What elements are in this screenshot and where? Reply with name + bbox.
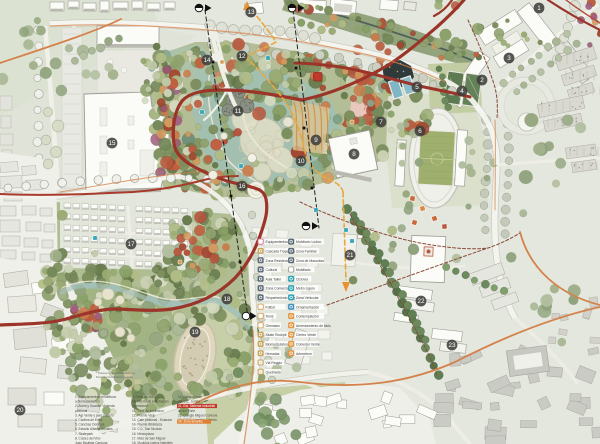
svg-text:8. Colsec del Vivo: 8. Colsec del Vivo — [75, 436, 101, 440]
svg-text:Pereira consolidacion verde: Pereira consolidacion verde — [96, 375, 133, 379]
svg-text:9: 9 — [314, 137, 318, 144]
svg-text:Gimnasio: Gimnasio — [266, 324, 280, 328]
svg-text:1. Equipamientos dendriticos: 1. Equipamientos dendriticos — [75, 395, 116, 399]
svg-text:24. Zona amarilla: 24. Zona amarilla — [178, 420, 203, 424]
svg-text:3. Agr Verde y parq custero: 3. Agr Verde y parq custero — [75, 413, 114, 417]
svg-text:Mobiliario: Mobiliario — [296, 268, 311, 272]
svg-text:Arboretum: Arboretum — [296, 352, 312, 356]
svg-text:7: 7 — [379, 119, 383, 126]
svg-text:Herradas: Herradas — [266, 352, 280, 356]
svg-text:19. Patinodromo: 19. Patinodromo — [178, 395, 202, 399]
svg-text:14. Puente Biblioteca: 14. Puente Biblioteca — [132, 423, 162, 427]
svg-text:Contemplación: Contemplación — [296, 315, 319, 319]
svg-text:Skate Rockpit: Skate Rockpit — [266, 333, 287, 337]
svg-text:Via Reggio: Via Reggio — [266, 361, 283, 365]
svg-text:Metro Ligero: Metro Ligero — [296, 287, 315, 291]
svg-text:Aula Taller: Aula Taller — [266, 277, 283, 281]
svg-text:peatonal: peatonal — [75, 409, 88, 413]
svg-text:Zona Vehicular: Zona Vehicular — [296, 296, 319, 300]
svg-text:16. Mercoplaza: 16. Mercoplaza — [132, 432, 154, 436]
svg-text:Zona de Mascotas: Zona de Mascotas — [296, 259, 324, 263]
svg-text:18: 18 — [223, 296, 231, 303]
svg-text:3: 3 — [507, 55, 511, 62]
svg-text:an del Porte: an del Porte — [178, 409, 195, 413]
svg-text:12: 12 — [238, 53, 246, 60]
svg-text:15. C.C. San Nicolas: 15. C.C. San Nicolas — [132, 427, 162, 431]
svg-text:4. Cantina de Entol: 4. Cantina de Entol — [75, 418, 102, 422]
svg-text:20: 20 — [16, 407, 24, 414]
svg-text:Quebrada: Quebrada — [266, 370, 281, 374]
svg-text:17: 17 — [127, 241, 135, 248]
svg-text:17. Miso de San Miguel: 17. Miso de San Miguel — [132, 436, 166, 440]
svg-text:16: 16 — [238, 183, 246, 190]
svg-text:a biomusculacion: a biomusculacion — [75, 400, 100, 404]
svg-text:Zona Comercial: Zona Comercial — [266, 287, 290, 291]
svg-text:Tenis: Tenis — [266, 315, 274, 319]
svg-text:Zona Familiar: Zona Familiar — [296, 250, 318, 254]
svg-text:8: 8 — [352, 151, 356, 158]
svg-text:Zona Residencial: Zona Residencial — [266, 259, 292, 263]
svg-text:5. Canchas Oorturas: 5. Canchas Oorturas — [75, 423, 105, 427]
svg-text:4: 4 — [460, 88, 464, 95]
svg-text:Ornamentación: Ornamentación — [296, 305, 319, 309]
svg-text:Comedor Verde: Comedor Verde — [296, 343, 320, 347]
svg-text:6. Estadio Alberto Grisales: 6. Estadio Alberto Grisales — [75, 427, 113, 431]
svg-text:11. Torre de exhibicion: 11. Torre de exhibicion — [132, 409, 164, 413]
svg-text:Biomusculatura: Biomusculatura — [266, 343, 289, 347]
svg-text:10: 10 — [297, 158, 305, 165]
svg-text:21. Est. Sistema Industrial: 21. Est. Sistema Industrial — [178, 404, 215, 408]
svg-text:Ciclovia: Ciclovia — [296, 277, 308, 281]
svg-text:23: 23 — [448, 342, 456, 349]
svg-text:Arrendamiento de bicis: Arrendamiento de bicis — [296, 324, 331, 328]
svg-text:15: 15 — [108, 140, 116, 147]
svg-text:14: 14 — [203, 57, 211, 64]
svg-text:13. Cafe peatonal - Estacion: 13. Cafe peatonal - Estacion — [132, 418, 172, 422]
svg-text:5: 5 — [415, 84, 419, 91]
svg-text:Mobiliario Lúdico: Mobiliario Lúdico — [296, 240, 322, 244]
svg-text:22. Colegio Miguel Cordova: 22. Colegio Miguel Cordova — [178, 413, 218, 417]
svg-text:11: 11 — [235, 108, 242, 115]
svg-text:10. Puerto de entomacion: 10. Puerto de entomacion — [132, 400, 169, 404]
svg-text:9. Porte de BMX: 9. Porte de BMX — [132, 395, 156, 399]
svg-text:22: 22 — [417, 298, 425, 305]
svg-text:1: 1 — [537, 5, 541, 12]
svg-text:19: 19 — [191, 329, 199, 336]
svg-text:2: 2 — [480, 77, 484, 84]
svg-text:6: 6 — [418, 128, 422, 135]
svg-text:2. Avent y Guarder Vivienda: 2. Avent y Guarder Vivienda — [75, 404, 115, 408]
svg-text:7. Skatepark: 7. Skatepark — [75, 432, 93, 436]
svg-text:20. C.C. Jumbo: 20. C.C. Jumbo — [178, 400, 200, 404]
svg-text:Equipamientos: Equipamientos — [266, 240, 289, 244]
svg-text:y peotumal: y peotumal — [132, 404, 148, 408]
svg-text:13: 13 — [247, 9, 255, 16]
svg-text:Cultural: Cultural — [266, 268, 278, 272]
svg-text:21: 21 — [346, 252, 354, 259]
svg-text:Requerimiento Integral: Requerimiento Integral — [266, 296, 301, 300]
svg-text:12. Puente Viejo: 12. Puente Viejo — [132, 413, 156, 417]
svg-text:Centro Verde: Centro Verde — [296, 333, 316, 337]
svg-text:Fútbol: Fútbol — [266, 305, 276, 309]
